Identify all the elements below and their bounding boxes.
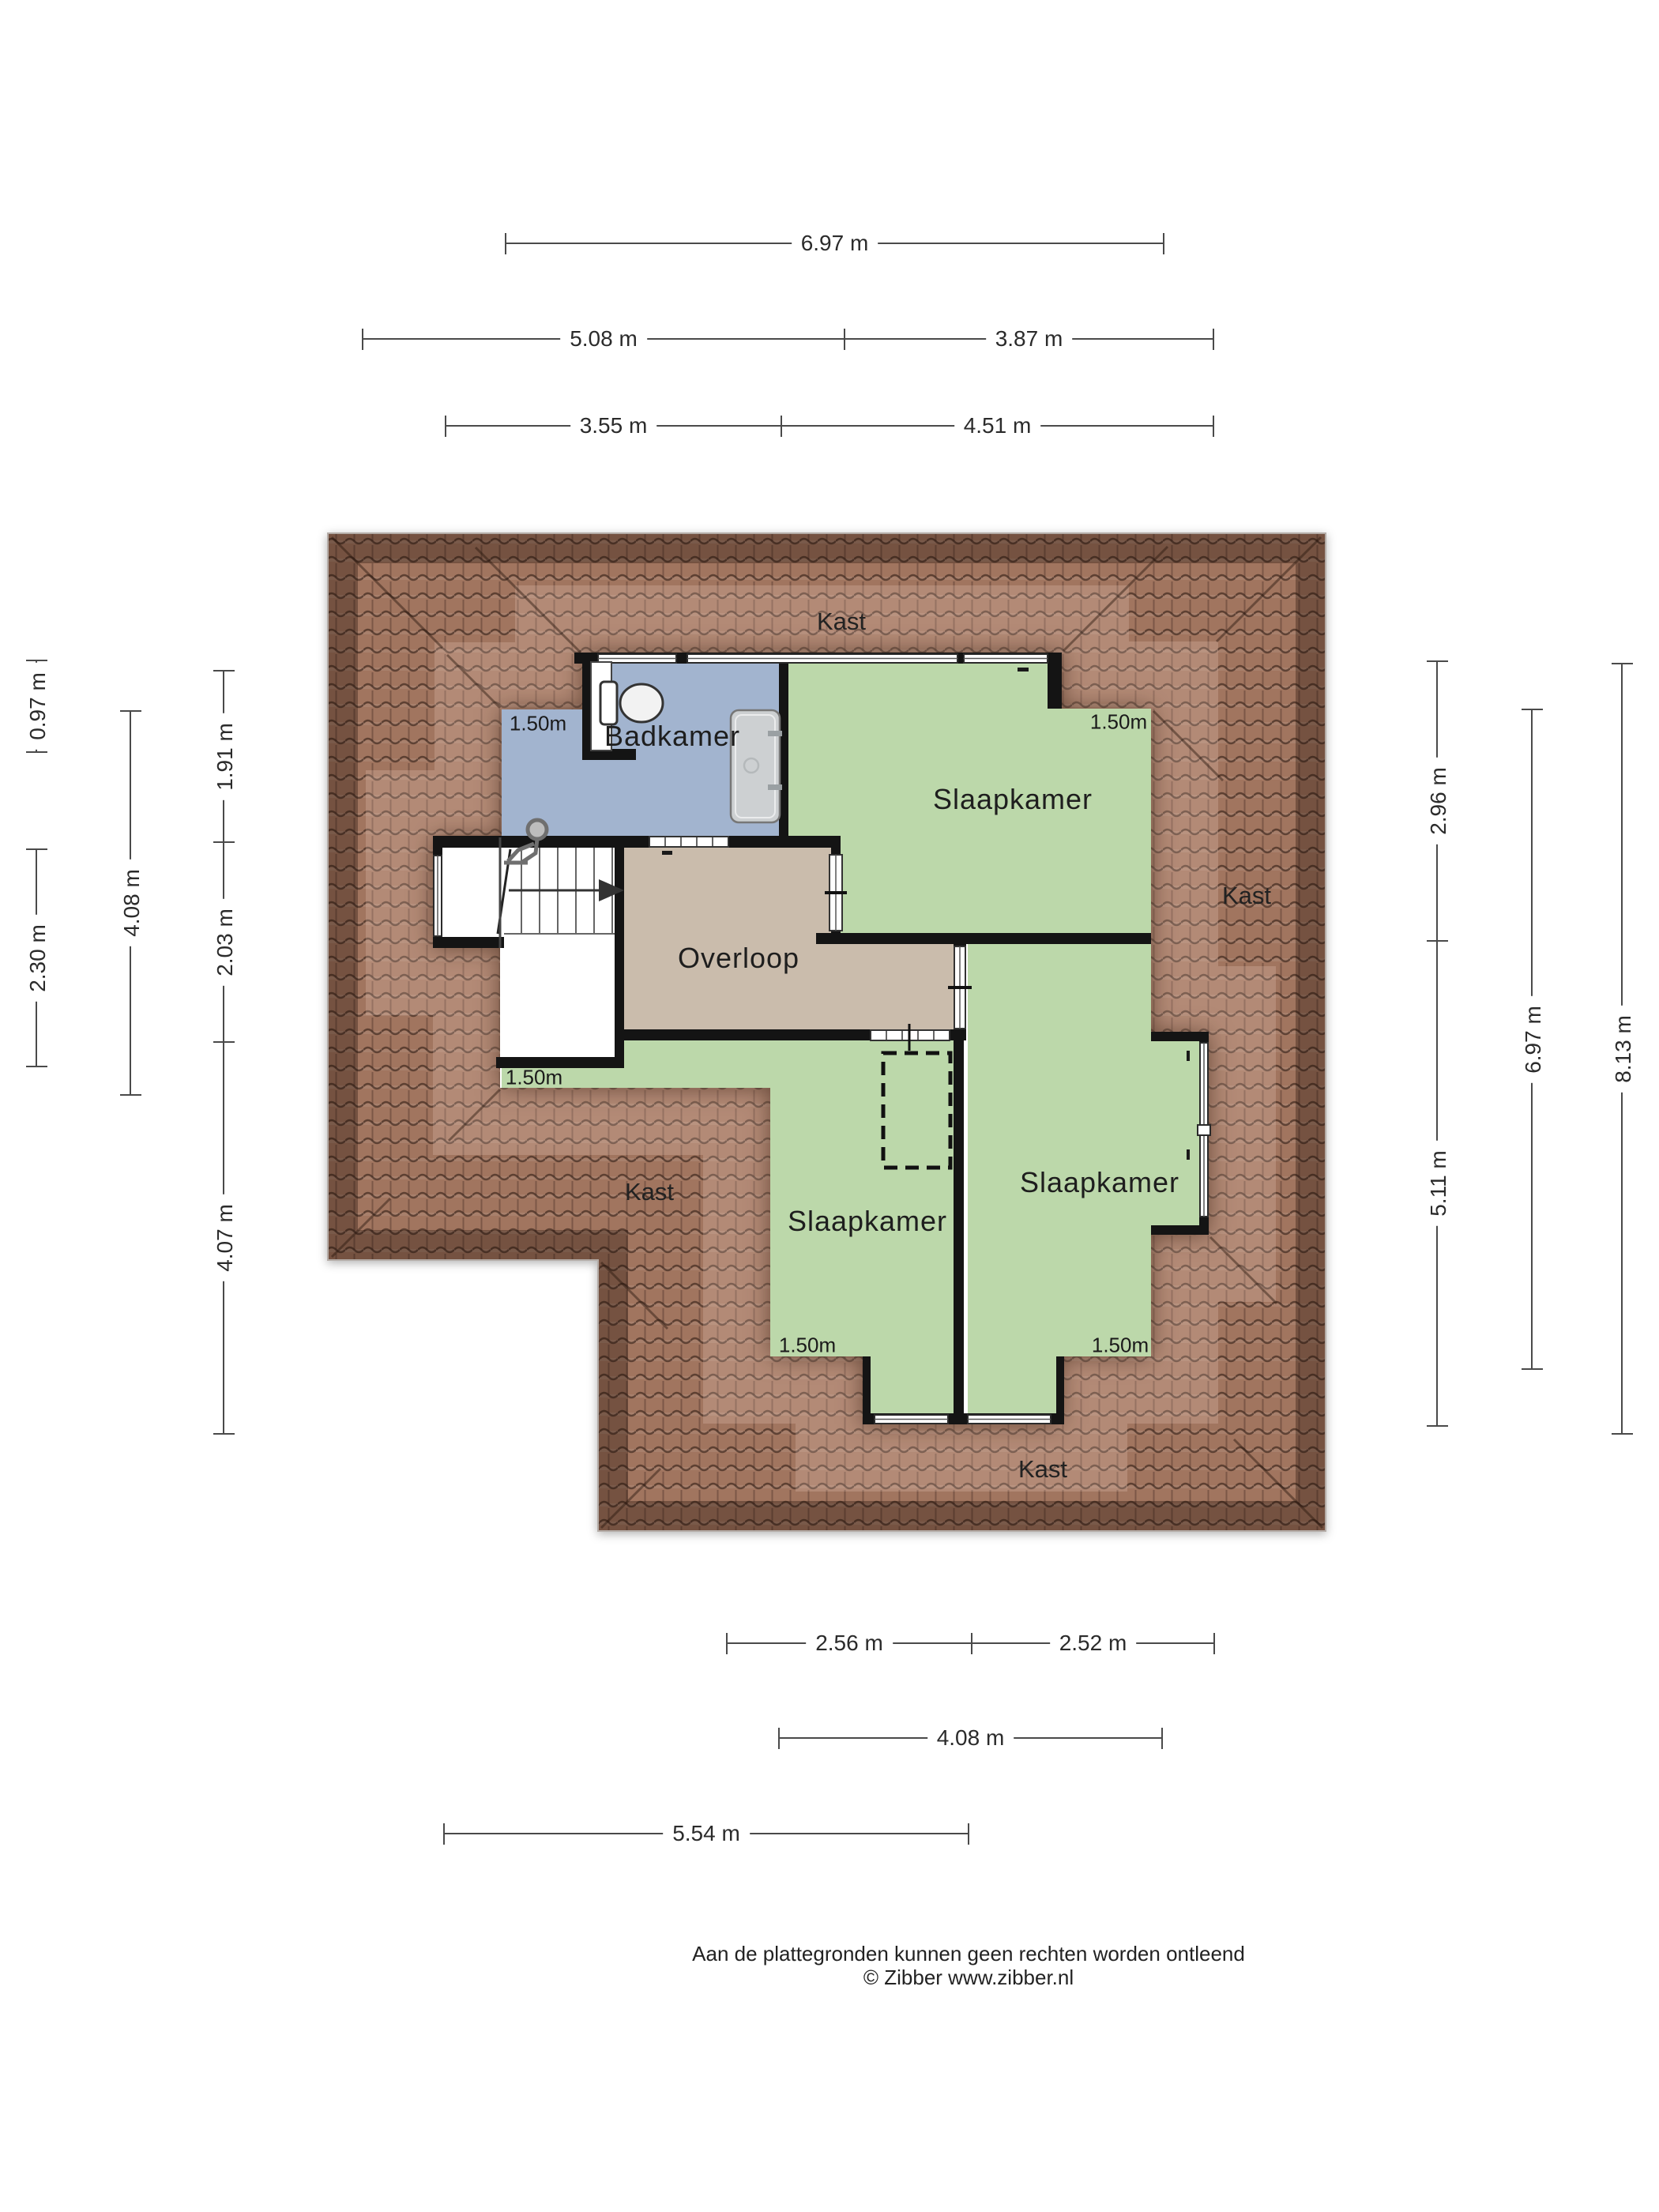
height-marker-badkamer: 1.50m [510,712,566,736]
dim-left-0-97: 0.97 m [36,660,37,752]
floorplan-drawing [0,0,1659,2212]
dim-bottom-2-56: 2.56 m [727,1642,972,1644]
opening-badkamer [649,837,728,847]
floorplan-page: Badkamer Slaapkamer Overloop Slaapkamer … [0,0,1659,2212]
toilet-icon [600,682,663,724]
label-kast-left: Kast [625,1178,674,1206]
dim-right-2-96: 2.96 m [1436,661,1438,941]
dim-left-2-30: 2.30 m [36,849,37,1066]
dim-left-4-07: 4.07 m [223,1042,224,1434]
label-overloop: Overloop [678,942,799,975]
footer-copyright: © Zibber www.zibber.nl [863,1966,1074,1990]
label-slaapkamer-middle: Slaapkamer [788,1205,947,1238]
label-kast-right: Kast [1222,882,1271,910]
dim-top-3-87: 3.87 m [845,338,1213,340]
dim-left-4-08: 4.08 m [130,711,131,1095]
footer-disclaimer: Aan de plattegronden kunnen geen rechten… [692,1942,1245,1966]
label-badkamer: Badkamer [604,720,740,753]
dim-left-2-03: 2.03 m [223,842,224,1042]
height-marker-middle-top: 1.50m [506,1066,562,1090]
dim-right-5-11: 5.11 m [1436,941,1438,1426]
label-kast-bottom: Kast [1018,1455,1067,1484]
height-marker-middle-bottom: 1.50m [779,1334,836,1358]
dim-right-8-13: 8.13 m [1621,664,1623,1434]
dim-top-5-08: 5.08 m [363,338,845,340]
dim-bottom-4-08: 4.08 m [779,1737,1162,1739]
dim-bottom-5-54: 5.54 m [444,1833,969,1834]
height-marker-slaapkamer-top: 1.50m [1090,710,1147,735]
dim-bottom-2-52: 2.52 m [972,1642,1214,1644]
label-slaapkamer-right: Slaapkamer [1020,1166,1179,1199]
label-kast-top: Kast [817,608,866,636]
height-marker-right-bottom: 1.50m [1092,1334,1149,1358]
dim-left-1-91: 1.91 m [223,671,224,842]
dim-top-3-55: 3.55 m [446,425,781,427]
dim-top-4-51: 4.51 m [781,425,1213,427]
dim-top-6-97: 6.97 m [506,243,1164,244]
dim-right-6-97: 6.97 m [1531,709,1533,1369]
label-slaapkamer-top: Slaapkamer [933,783,1093,816]
